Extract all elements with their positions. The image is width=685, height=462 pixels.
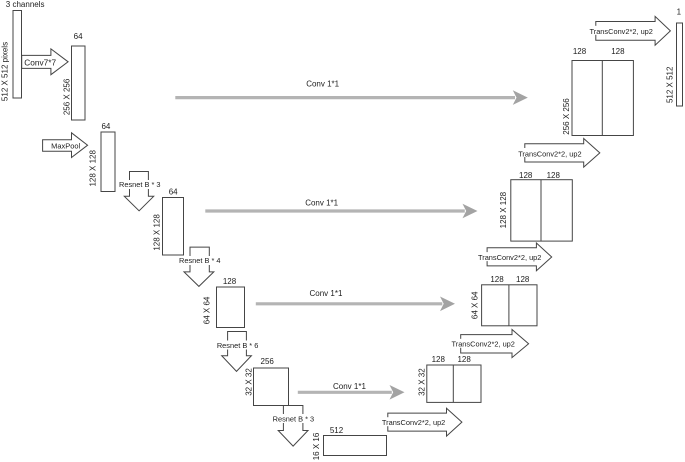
svg-text:32 X 32: 32 X 32 bbox=[418, 368, 427, 396]
svg-text:512: 512 bbox=[330, 426, 344, 435]
svg-text:128 X 128: 128 X 128 bbox=[499, 191, 508, 228]
svg-text:128: 128 bbox=[611, 47, 625, 56]
svg-text:128: 128 bbox=[547, 171, 561, 180]
svg-text:Conv7*7: Conv7*7 bbox=[24, 58, 56, 68]
svg-text:256 X 256: 256 X 256 bbox=[62, 78, 71, 115]
svg-text:128: 128 bbox=[490, 275, 504, 284]
svg-text:256: 256 bbox=[261, 357, 275, 366]
svg-text:64 X 64: 64 X 64 bbox=[471, 291, 480, 319]
svg-text:3 channels: 3 channels bbox=[6, 0, 45, 9]
svg-text:128: 128 bbox=[519, 171, 533, 180]
svg-text:TransConv2*2, up2: TransConv2*2, up2 bbox=[478, 253, 541, 262]
svg-text:Resnet B * 3: Resnet B * 3 bbox=[119, 180, 161, 189]
svg-text:TransConv2*2, up2: TransConv2*2, up2 bbox=[382, 418, 445, 427]
svg-text:16 X 16: 16 X 16 bbox=[312, 432, 321, 460]
svg-text:TransConv2*2, up2: TransConv2*2, up2 bbox=[518, 150, 581, 159]
svg-text:512 X 512: 512 X 512 bbox=[666, 66, 675, 103]
svg-text:Conv 1*1: Conv 1*1 bbox=[306, 80, 339, 89]
svg-text:Resnet B * 6: Resnet B * 6 bbox=[217, 341, 259, 350]
svg-text:64: 64 bbox=[101, 122, 110, 131]
svg-text:128: 128 bbox=[223, 277, 237, 286]
svg-text:128: 128 bbox=[432, 355, 446, 364]
svg-text:64: 64 bbox=[74, 32, 83, 41]
svg-text:Resnet B * 4: Resnet B * 4 bbox=[179, 256, 221, 265]
svg-text:128: 128 bbox=[457, 355, 471, 364]
svg-text:Conv 1*1: Conv 1*1 bbox=[333, 382, 366, 391]
svg-text:TransConv2*2, up2: TransConv2*2, up2 bbox=[590, 27, 653, 36]
svg-text:1: 1 bbox=[677, 8, 682, 17]
svg-text:MaxPool: MaxPool bbox=[51, 142, 81, 151]
svg-text:TransConv2*2, up2: TransConv2*2, up2 bbox=[452, 340, 515, 349]
svg-text:128: 128 bbox=[573, 47, 587, 56]
svg-text:128 X 128: 128 X 128 bbox=[152, 214, 161, 251]
svg-text:64: 64 bbox=[169, 188, 178, 197]
svg-text:128: 128 bbox=[516, 275, 530, 284]
svg-text:512 X 512 pixels: 512 X 512 pixels bbox=[1, 42, 10, 101]
svg-text:128 X 128: 128 X 128 bbox=[88, 150, 97, 187]
svg-text:Conv 1*1: Conv 1*1 bbox=[305, 199, 338, 208]
svg-text:32 X 32: 32 X 32 bbox=[244, 368, 253, 396]
svg-text:Resnet B * 3: Resnet B * 3 bbox=[273, 414, 315, 423]
svg-text:64 X 64: 64 X 64 bbox=[203, 296, 212, 324]
svg-text:Conv 1*1: Conv 1*1 bbox=[310, 289, 343, 298]
svg-text:256 X 256: 256 X 256 bbox=[562, 98, 571, 135]
